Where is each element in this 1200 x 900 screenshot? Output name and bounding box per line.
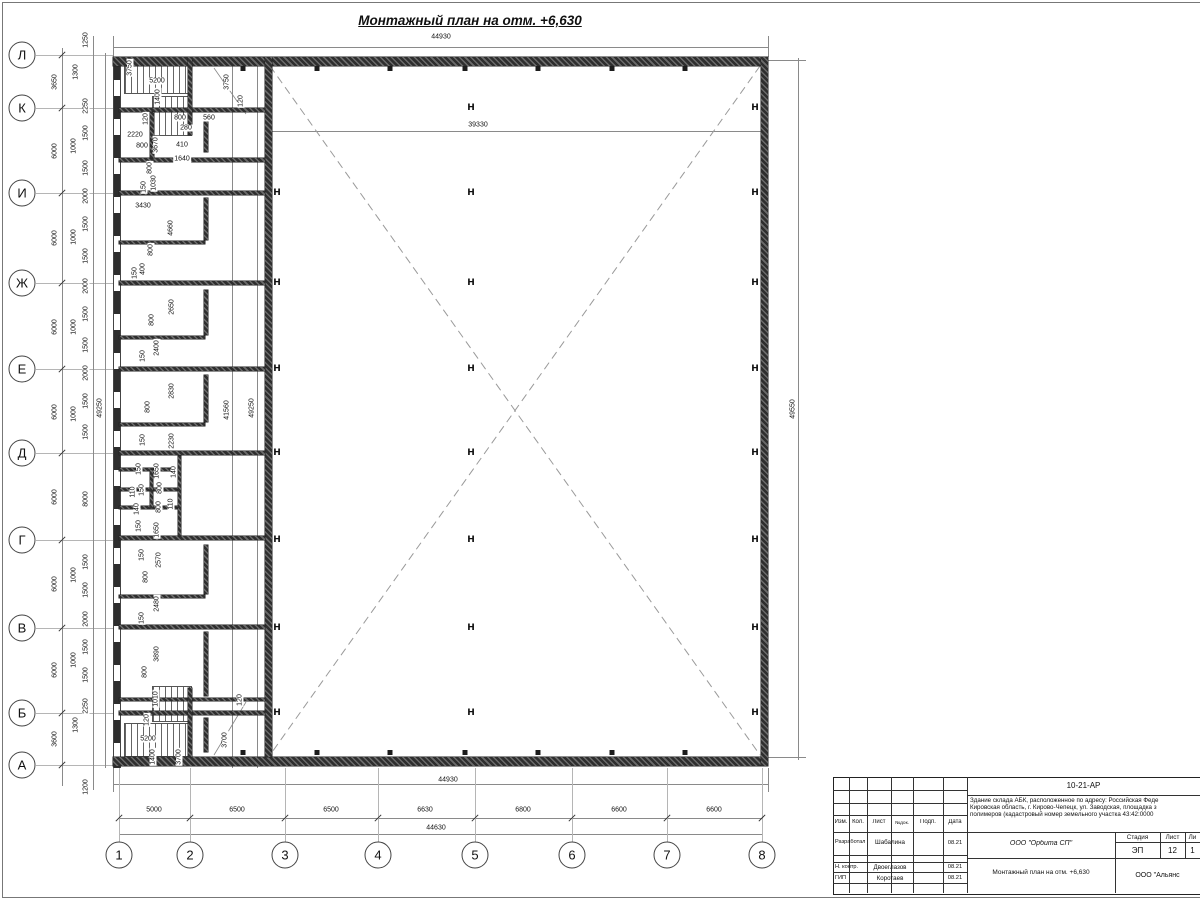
facade-column <box>388 66 393 71</box>
wall <box>119 451 265 455</box>
dim-label: 2000 <box>83 610 90 628</box>
wall <box>119 108 265 112</box>
dim-label: 1000 <box>71 651 78 669</box>
steel-column-symbol: H <box>467 103 475 113</box>
facade-column <box>241 66 246 71</box>
dim-label: 110 <box>168 497 175 510</box>
dim-label: 150 <box>140 349 147 363</box>
dim-label: 800 <box>156 500 163 514</box>
wall <box>119 625 265 629</box>
dim-label: 3700 <box>222 731 229 749</box>
facade-column <box>683 66 688 71</box>
dim-label: 800 <box>142 665 149 679</box>
role-label: ГИП <box>835 875 846 881</box>
dim-label: 1500 <box>83 392 90 410</box>
steel-column-symbol: H <box>751 708 759 718</box>
dim-label: 1000 <box>71 137 78 155</box>
steel-column-symbol: H <box>751 364 759 374</box>
dim-label: 150 <box>139 611 146 625</box>
dim-label: 1030 <box>151 174 158 192</box>
dim-label: 800 <box>143 570 150 584</box>
wall <box>761 57 768 766</box>
title-block-line <box>967 858 1200 859</box>
project-description: Здание склада АБК, расположенное по адре… <box>970 797 1200 818</box>
title-block-line <box>967 795 1200 796</box>
dim-label: 150 <box>139 548 146 562</box>
facade-column <box>536 66 541 71</box>
dim-label: 3670 <box>153 136 160 154</box>
steel-column-symbol: H <box>273 188 281 198</box>
steel-column-symbol: H <box>467 708 475 718</box>
dim-label: 800 <box>157 481 164 495</box>
dim-label: 1500 <box>83 553 90 571</box>
steel-column-symbol: H <box>467 278 475 288</box>
dim-label: 49550 <box>790 398 797 419</box>
dim-label: 560 <box>202 115 216 122</box>
wall <box>119 711 265 715</box>
dim-label: 6000 <box>52 488 59 506</box>
facade-column <box>463 66 468 71</box>
dim-label: 6600 <box>705 807 723 814</box>
project-code: 10-21-АР <box>967 781 1200 790</box>
dim-label: 2000 <box>83 364 90 382</box>
sheets-value: 1 <box>1185 846 1200 855</box>
steel-column-symbol: H <box>273 535 281 545</box>
role-name: Шабалина <box>867 839 913 846</box>
row-axis-bubble: Г <box>9 527 36 554</box>
wall <box>119 281 265 285</box>
wall <box>119 158 265 162</box>
steel-column-symbol: H <box>467 448 475 458</box>
dim-label: 1650 <box>154 462 161 480</box>
dim-label: 2220 <box>126 132 144 139</box>
dim-label: 1300 <box>73 63 80 81</box>
dim-label: 5200 <box>148 78 166 85</box>
title-block-line <box>833 872 967 873</box>
steel-column-symbol: H <box>467 364 475 374</box>
steel-column-symbol: H <box>751 623 759 633</box>
dim-label: 39330 <box>467 122 488 129</box>
role-date: 08.21 <box>943 875 967 882</box>
dim-label: 1500 <box>83 336 90 354</box>
col-header-podp: Подп. <box>913 819 943 826</box>
dim-label: 120 <box>143 112 150 126</box>
title-block-line <box>833 862 967 863</box>
dim-label: 1500 <box>83 581 90 599</box>
dim-label: 150 <box>141 180 148 194</box>
steel-column-symbol: H <box>273 278 281 288</box>
dim-label: 150 <box>132 266 139 280</box>
dim-label: 3650 <box>52 73 59 91</box>
dim-label: 1640 <box>173 156 191 163</box>
dim-label: 1500 <box>83 305 90 323</box>
dim-label: 6600 <box>610 807 628 814</box>
stage-value: ЭП <box>1115 846 1160 855</box>
facade-column <box>463 750 468 755</box>
facade-column <box>315 66 320 71</box>
steel-column-symbol: H <box>467 623 475 633</box>
wall <box>113 57 768 66</box>
dim-label: 800 <box>149 313 156 327</box>
dim-label: 400 <box>140 262 147 276</box>
row-axis-bubble: Д <box>9 440 36 467</box>
dim-label: 4660 <box>168 219 175 237</box>
title-block-line <box>967 832 1200 833</box>
dim-label: 800 <box>145 400 152 414</box>
facade-column <box>683 750 688 755</box>
dim-label: 2000 <box>83 187 90 205</box>
col-header-data: Дата <box>943 819 967 826</box>
wall <box>188 688 192 757</box>
wall <box>113 757 768 766</box>
steel-column-symbol: H <box>751 448 759 458</box>
title-block-line <box>913 777 914 893</box>
stage-header: Стадия <box>1115 834 1160 841</box>
wall <box>188 57 192 135</box>
facade-column <box>388 750 393 755</box>
dim-label: 5200 <box>139 736 157 743</box>
dim-label: 140 <box>134 502 141 516</box>
dim-label: 1500 <box>83 666 90 684</box>
dim-label: 1400 <box>155 88 162 106</box>
wall <box>204 198 208 240</box>
col-header-kol: Кол. <box>849 819 867 826</box>
left-wall-windows <box>113 57 121 768</box>
dim-label: 800 <box>135 143 149 150</box>
dim-label: 150 <box>136 462 143 476</box>
doc-title: Монтажный план на отм. +6,630 <box>967 869 1115 876</box>
dim-label: 1250 <box>83 31 90 49</box>
title-block-line <box>849 777 850 893</box>
dim-label: 1400 <box>150 748 157 766</box>
dim-label: 1500 <box>83 423 90 441</box>
wall <box>119 423 205 426</box>
dim-label: 120 <box>237 693 244 707</box>
col-axis-bubble: 5 <box>462 842 489 869</box>
row-axis-bubble: Ж <box>9 270 36 297</box>
dim-label: 44930 <box>437 777 458 784</box>
dim-label: 3890 <box>154 645 161 663</box>
col-axis-bubble: 1 <box>106 842 133 869</box>
steel-column-symbol: H <box>751 103 759 113</box>
dim-label: 6800 <box>514 807 532 814</box>
row-axis-bubble: В <box>9 615 36 642</box>
steel-column-symbol: H <box>467 188 475 198</box>
dim-label: 6000 <box>52 403 59 421</box>
col-axis-bubble: 2 <box>177 842 204 869</box>
row-axis-bubble: А <box>9 752 36 779</box>
steel-column-symbol: H <box>751 278 759 288</box>
company-name: ООО "Альянс <box>1115 872 1200 880</box>
row-axis-bubble: И <box>9 180 36 207</box>
role-date: 08.21 <box>943 864 967 871</box>
dim-label: 410 <box>175 142 189 149</box>
wall <box>204 632 208 696</box>
dim-label: 49250 <box>249 397 256 418</box>
dim-label: 6000 <box>52 318 59 336</box>
role-name: Двоеглазов <box>867 864 913 871</box>
dim-label: 2400 <box>154 339 161 357</box>
wall <box>119 336 205 339</box>
dim-label: 2650 <box>169 298 176 316</box>
col-header-list: Лист <box>867 819 891 826</box>
dim-label: 3700 <box>176 748 183 766</box>
dim-label: 3430 <box>134 203 152 210</box>
title-block-line <box>833 855 967 856</box>
leader-line <box>214 702 246 755</box>
facade-column <box>315 750 320 755</box>
steel-column-symbol: H <box>273 448 281 458</box>
dim-label: 1500 <box>83 638 90 656</box>
role-name: Коротаев <box>867 875 913 882</box>
dim-label: 120 <box>144 713 151 727</box>
row-axis-bubble: Л <box>9 42 36 69</box>
facade-column <box>610 750 615 755</box>
dim-label: 3750 <box>127 59 134 77</box>
wall <box>178 456 181 536</box>
dim-label: 150 <box>140 433 147 447</box>
wall <box>119 536 265 540</box>
wall <box>204 545 208 594</box>
org-name: ООО "Орбита СП" <box>967 840 1115 847</box>
role-date: 08.21 <box>943 840 967 847</box>
col-axis-bubble: 3 <box>272 842 299 869</box>
sheet-header: Лист <box>1160 834 1185 841</box>
dim-label: 1650 <box>154 521 161 539</box>
dim-label: 140 <box>171 465 178 479</box>
wall <box>204 290 208 335</box>
steel-column-symbol: H <box>751 535 759 545</box>
dim-label: 2000 <box>83 277 90 295</box>
dim-label: 2250 <box>83 697 90 715</box>
steel-column-symbol: H <box>273 623 281 633</box>
dim-label: 1200 <box>83 778 90 796</box>
drawing-sheet: Монтажный план на отм. +6,630 10-21-АР З… <box>0 0 1200 900</box>
facade-column <box>241 750 246 755</box>
dim-label: 1010 <box>153 690 160 708</box>
dim-label: 6000 <box>52 661 59 679</box>
wall <box>119 595 205 598</box>
dim-label: 1500 <box>83 215 90 233</box>
wall <box>204 375 208 422</box>
dim-label: 44930 <box>430 34 451 41</box>
title-block-line <box>833 790 967 791</box>
dim-label: 8000 <box>83 490 90 508</box>
dim-label: 1000 <box>71 318 78 336</box>
col-header-izm: Изм. <box>833 819 849 826</box>
dim-label: 800 <box>173 115 187 122</box>
wall <box>204 718 208 752</box>
dim-label: 2480 <box>154 595 161 613</box>
role-label: Н. контр. <box>835 864 858 870</box>
dim-label: 800 <box>147 161 154 175</box>
title-block-line <box>833 815 967 816</box>
title-block-line <box>833 832 967 833</box>
dim-label: 110 <box>130 485 137 498</box>
col-axis-bubble: 4 <box>365 842 392 869</box>
dim-label: 150 <box>136 519 143 533</box>
dim-label: 280 <box>179 125 193 132</box>
steel-column-symbol: H <box>751 188 759 198</box>
dim-label: 6000 <box>52 575 59 593</box>
col-header-ndok: №док. <box>891 821 913 827</box>
dim-label: 6500 <box>322 807 340 814</box>
facade-column <box>536 750 541 755</box>
col-axis-bubble: 7 <box>654 842 681 869</box>
dim-label: 1500 <box>83 159 90 177</box>
dim-label: 2250 <box>83 97 90 115</box>
dim-label: 2830 <box>169 382 176 400</box>
col-axis-bubble: 8 <box>749 842 776 869</box>
title-block-line <box>833 803 967 804</box>
row-axis-bubble: К <box>9 95 36 122</box>
dim-label: 2570 <box>156 551 163 569</box>
dim-label: 49250 <box>97 397 104 418</box>
title-block-line <box>1115 842 1200 843</box>
sheets-header: Ли <box>1185 834 1200 841</box>
steel-column-symbol: H <box>467 535 475 545</box>
dim-label: 3600 <box>52 730 59 748</box>
dim-label: 6630 <box>416 807 434 814</box>
dim-label: 1000 <box>71 228 78 246</box>
dim-label: 150 <box>139 483 146 497</box>
steel-column-symbol: H <box>273 364 281 374</box>
steel-column-symbol: H <box>273 708 281 718</box>
dim-label: 44630 <box>425 825 446 832</box>
dim-label: 1300 <box>73 716 80 734</box>
role-label: Разработал <box>835 839 865 845</box>
row-axis-bubble: Б <box>9 700 36 727</box>
row-axis-bubble: Е <box>9 356 36 383</box>
dim-label: 5000 <box>145 807 163 814</box>
dim-label: 6000 <box>52 229 59 247</box>
wall <box>119 367 265 371</box>
dim-label: 6000 <box>52 142 59 160</box>
dim-label: 120 <box>238 94 245 108</box>
dim-label: 800 <box>148 243 155 257</box>
wall <box>265 57 272 757</box>
dim-label: 2230 <box>169 432 176 450</box>
dim-label: 1000 <box>71 405 78 423</box>
dim-label: 1000 <box>71 566 78 584</box>
dim-label: 3750 <box>224 73 231 91</box>
dim-label: 41560 <box>224 399 231 420</box>
dim-label: 1500 <box>83 124 90 142</box>
sheet-value: 12 <box>1160 846 1185 855</box>
title-block-line <box>833 883 967 884</box>
dim-label: 6500 <box>228 807 246 814</box>
col-axis-bubble: 6 <box>559 842 586 869</box>
facade-column <box>610 66 615 71</box>
dim-label: 1500 <box>83 247 90 265</box>
wall <box>119 241 205 244</box>
